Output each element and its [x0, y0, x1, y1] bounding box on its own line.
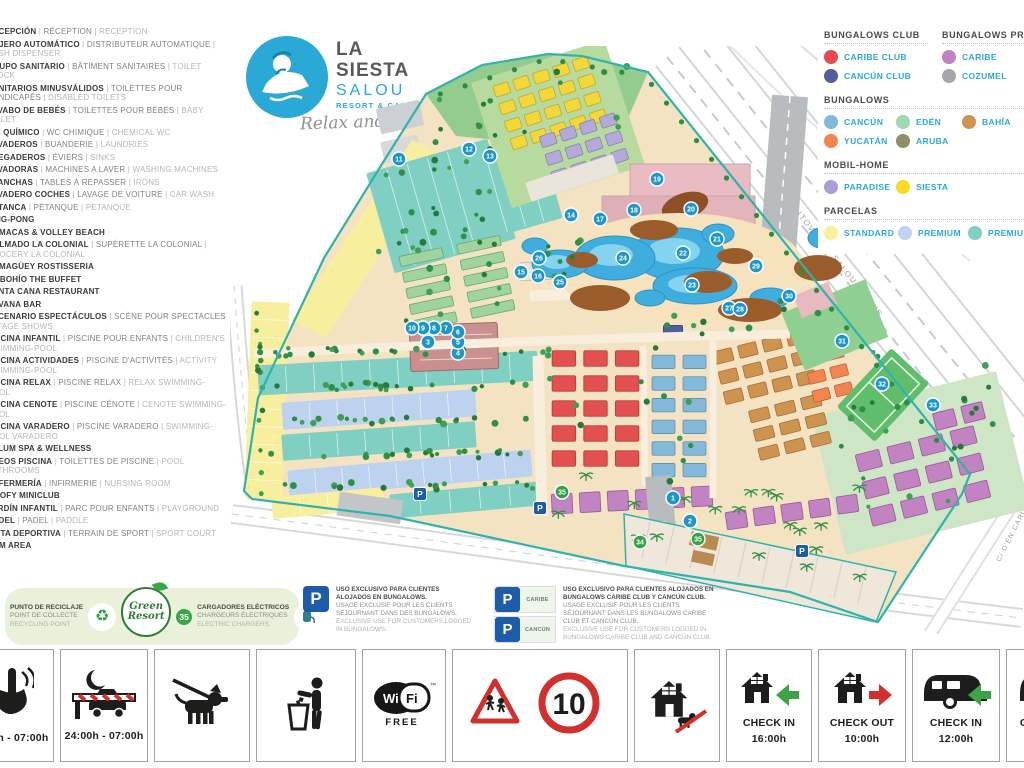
svg-text:P: P [537, 503, 543, 513]
map-marker-32: 32 [875, 377, 889, 391]
facility-item: LAVADEROS | BUANDERIE | LAUNDRIES [0, 140, 228, 150]
svg-text:18: 18 [630, 208, 638, 215]
legend-entry: ARUBA [896, 134, 962, 148]
legend-section-title: MOBIL-HOME [824, 160, 1024, 174]
svg-text:5: 5 [456, 340, 460, 347]
facility-item: CAJERO AUTOMÁTICO | DISTRIBUTEUR AUTOMAT… [0, 40, 228, 59]
legend-section-title: BUNGALOWS [824, 95, 1024, 109]
silence-icon [0, 666, 34, 729]
parking-club: PCARIBE PCANCÚN USO EXCLUSIVO PARA CLIEN… [494, 586, 723, 646]
color-dot-icon [896, 134, 910, 148]
house-check-in-icon [737, 665, 801, 714]
legend-entry: CANCÚN CLUB [824, 69, 928, 83]
color-dot-icon [824, 115, 838, 129]
rule-tile-silence: 24:00h - 07:00h [0, 649, 54, 762]
legend-entry: CARIBE [942, 50, 1024, 64]
facility-item: ESCENARIO ESPECTÁCULOS | SCÈNE POUR SPEC… [0, 312, 228, 331]
color-dot-icon [824, 180, 838, 194]
legend-entry: CARIBE CLUB [824, 50, 928, 64]
color-dot-icon [824, 69, 838, 83]
litter-icon [278, 674, 334, 737]
rule-tile-children-speed: 10 [452, 649, 628, 762]
svg-text:24: 24 [619, 256, 627, 263]
map-marker-3: 3 [421, 335, 435, 349]
svg-text:30: 30 [785, 294, 793, 301]
svg-text:34: 34 [636, 540, 644, 547]
map-marker-23: 23 [685, 278, 699, 292]
parking-general: P USO EXCLUSIVO PARA CLIENTES ALOJADOS E… [303, 586, 476, 646]
electric-chargers-text: CARGADORES ELÉCTRICOS CHARGEURS ÉLECTRIQ… [197, 604, 289, 630]
map-marker-24: 24 [616, 251, 630, 265]
svg-text:35: 35 [694, 537, 702, 544]
facility-item: PISCINA RELAX | PISCINE RELAX | RELAX SW… [0, 378, 228, 397]
map-marker-35: 35 [691, 532, 705, 546]
map-marker-28: 28 [733, 302, 747, 316]
svg-text:4: 4 [456, 351, 460, 358]
facility-item: PING-PONG [0, 215, 228, 225]
facility-item: LAVADORAS | MACHINES A LAVER | WASHING M… [0, 165, 228, 175]
svg-text:7: 7 [444, 326, 448, 333]
facility-item: GRUPO SANITARIO | BÂTIMENT SANITAIRES | … [0, 62, 228, 81]
rule-tile-barrier: 24:00h - 07:00h [60, 649, 148, 762]
svg-text:31: 31 [838, 339, 846, 346]
svg-text:26: 26 [535, 256, 543, 263]
rule-tile-wifi: WiFi™FREE [362, 649, 446, 762]
parking-sign-cancun: PCANCÚN [494, 616, 556, 643]
legend-entry: YUCATÁN [824, 134, 896, 148]
legend-entry: CANCÚN [824, 115, 896, 129]
facility-item: HAVANA BAR [0, 300, 228, 310]
facility-item: PETANCA | PÉTANQUE | PETANQUE [0, 203, 228, 213]
svg-text:9: 9 [421, 326, 425, 333]
house-check-out-icon [830, 665, 894, 714]
house-no-dogs-icon [646, 673, 708, 738]
map-marker-11: 11 [392, 152, 406, 166]
facility-item: CAMAGÜEY ROSTISSERIA [0, 262, 228, 272]
facility-item: PUNTA CANA RESTAURANT [0, 287, 228, 297]
map-marker-33: 33 [926, 398, 940, 412]
parking-sign-icon: P [303, 586, 329, 612]
map-marker-10: 10 [405, 321, 419, 335]
map-marker-1: 1 [666, 491, 680, 505]
facility-item: GYM AREA [0, 541, 228, 551]
svg-text:23: 23 [688, 283, 696, 290]
map-marker-18: 18 [627, 203, 641, 217]
sidebar-legend: RECEPCIÓN | RÉCEPTION | RECEPTIONCAJERO … [0, 27, 228, 554]
svg-text:29: 29 [752, 264, 760, 271]
svg-text:FREE: FREE [385, 717, 418, 728]
svg-text:6: 6 [456, 330, 460, 337]
svg-text:33: 33 [929, 403, 937, 410]
parking-marker: P [534, 502, 547, 515]
facility-item: COLMADO LA COLONIAL | SUPÉRETTE LA COLON… [0, 240, 228, 259]
legend-entry: PREMIUM PLUS [968, 226, 1024, 240]
color-dot-icon [824, 134, 838, 148]
rule-tile-caravan-check-out: CHECK OUT12:00h [1006, 649, 1024, 762]
color-dot-icon [968, 226, 982, 240]
facility-item: TULUM SPA & WELLNESS [0, 444, 228, 454]
map-marker-16: 16 [531, 269, 545, 283]
map-marker-12: 12 [462, 142, 476, 156]
svg-text:™: ™ [430, 682, 436, 689]
svg-text:10: 10 [408, 326, 416, 333]
recycling-point-text: PUNTO DE RECICLAJE POINT DE COLLECTE REC… [10, 604, 83, 630]
legend-entry: STANDARD [824, 226, 898, 240]
map-marker-31: 31 [835, 334, 849, 348]
wifi-icon: WiFi™FREE [372, 677, 436, 734]
map-marker-14: 14 [564, 208, 578, 222]
parking-sign-caribe: PCARIBE [494, 586, 556, 613]
accommodation-legend: BUNGALOWS CLUBCARIBE CLUBCANCÚN CLUBBUNG… [818, 28, 1024, 254]
svg-text:1: 1 [671, 496, 675, 503]
rule-tile-house-check-in: CHECK IN16:00h [726, 649, 812, 762]
legend-section-title: BUNGALOWS PREMIUM [942, 30, 1024, 44]
legend-entry: SIESTA [896, 180, 962, 194]
green-services-banner: PUNTO DE RECICLAJE POINT DE COLLECTE REC… [5, 588, 299, 645]
svg-text:14: 14 [567, 213, 575, 220]
svg-text:P: P [417, 489, 423, 499]
svg-text:28: 28 [736, 307, 744, 314]
facility-item: GOOFY MINICLUB [0, 491, 228, 501]
legend-entry: EDÉN [896, 115, 962, 129]
svg-text:32: 32 [878, 382, 886, 389]
map-marker-29: 29 [749, 259, 763, 273]
facility-item: PISCINA CENOTE | PISCINE CÉNOTE | CENOTE… [0, 400, 228, 419]
rule-tile-house-no-dogs [634, 649, 720, 762]
facility-item: PISCINA VARADERO | PISCINE VARADERO | SW… [0, 422, 228, 441]
color-dot-icon [942, 50, 956, 64]
map-marker-19: 19 [650, 172, 664, 186]
svg-text:2: 2 [688, 519, 692, 526]
svg-text:21: 21 [713, 237, 721, 244]
map-marker-34: 34 [633, 535, 647, 549]
map-marker-30: 30 [782, 289, 796, 303]
facility-item: PLANCHAS | TABLES À REPASSER | IRONS [0, 178, 228, 188]
legend-section-title: BUNGALOWS CLUB [824, 30, 928, 44]
rule-tile-litter [256, 649, 356, 762]
facility-item: PISCINA INFANTIL | PISCINE POUR ENFANTS … [0, 334, 228, 353]
dog-leash-icon [169, 676, 235, 735]
svg-text:3: 3 [426, 340, 430, 347]
caravan-check-in-icon [920, 665, 992, 714]
map-marker-25: 25 [553, 275, 567, 289]
facility-item: EL BOHÍO THE BUFFET [0, 275, 228, 285]
color-dot-icon [942, 69, 956, 83]
resort-map-page: RECEPCIÓN | RÉCEPTION | RECEPTIONCAJERO … [0, 0, 1024, 768]
svg-text:13: 13 [486, 154, 494, 161]
legend-section-title: PARCELAS [824, 206, 1024, 220]
svg-text:Wi: Wi [383, 691, 399, 706]
parking-marker: P [796, 545, 809, 558]
svg-text:12: 12 [465, 147, 473, 154]
map-marker-17: 17 [593, 212, 607, 226]
facility-item: LAVADERO COCHES | LAVAGE DE VOITURE | CA… [0, 190, 228, 200]
svg-text:8: 8 [432, 326, 436, 333]
facility-item: PISCINA ACTIVIDADES | PISCINE D'ACTIVITÉ… [0, 356, 228, 375]
charger-count-badge: 35 [176, 609, 192, 625]
facility-item: RECEPCIÓN | RÉCEPTION | RECEPTION [0, 27, 228, 37]
map-marker-20: 20 [684, 202, 698, 216]
legend-entry: PARADISE [824, 180, 896, 194]
caravan-check-out-icon [1016, 665, 1024, 714]
color-dot-icon [824, 226, 838, 240]
facility-item: ENFERMERÍA | INFIRMERIE | NURSING ROOM [0, 479, 228, 489]
facility-item: JARDÍN INFANTIL | PARC POUR ENFANTS | PL… [0, 504, 228, 514]
facility-item: ASEOS PISCINA | TOILETTES DE PISCINE | P… [0, 457, 228, 476]
green-resort-logo: Green Resort [121, 587, 171, 637]
svg-text:17: 17 [596, 217, 604, 224]
facility-item: PISTA DEPORTIVA | TERRAIN DE SPORT | SPO… [0, 529, 228, 539]
svg-text:35: 35 [558, 490, 566, 497]
recycle-icon: ♻ [88, 603, 116, 631]
legend-entry: PREMIUM [898, 226, 968, 240]
svg-text:11: 11 [395, 157, 403, 164]
svg-text:Fi: Fi [406, 691, 418, 706]
rule-tile-dog-leash [154, 649, 250, 762]
svg-text:10: 10 [552, 688, 585, 721]
leaf-icon [152, 579, 168, 592]
svg-text:22: 22 [679, 251, 687, 258]
map-marker-2: 2 [683, 514, 697, 528]
parking-marker: P [414, 488, 427, 501]
color-dot-icon [962, 115, 976, 129]
map-marker-15: 15 [514, 265, 528, 279]
legend-entry: COZUMEL [942, 69, 1024, 83]
map-marker-26: 26 [532, 251, 546, 265]
legend-entry: BAHÍA [962, 115, 1024, 129]
facility-item: WC QUÍMICO | WC CHIMIQUE | CHEMICAL WC [0, 128, 228, 138]
rule-tile-house-check-out: CHECK OUT10:00h [818, 649, 906, 762]
rule-tile-caravan-check-in: CHECK IN12:00h [912, 649, 1000, 762]
svg-text:27: 27 [725, 306, 733, 313]
svg-text:15: 15 [517, 270, 525, 277]
map-marker-35: 35 [555, 485, 569, 499]
svg-text:19: 19 [653, 177, 661, 184]
color-dot-icon [896, 115, 910, 129]
color-dot-icon [824, 50, 838, 64]
svg-text:P: P [799, 546, 805, 556]
svg-text:16: 16 [534, 274, 542, 281]
facility-item: SANITARIOS MINUSVÁLIDOS | TOILETTES POUR… [0, 84, 228, 103]
svg-text:20: 20 [687, 207, 695, 214]
map-marker-13: 13 [483, 149, 497, 163]
facility-item: LAVABO DE BEBÉS | TOILETTES POUR BÉBÉS |… [0, 106, 228, 125]
map-marker-22: 22 [676, 246, 690, 260]
svg-text:25: 25 [556, 280, 564, 287]
barrier-icon [71, 668, 137, 727]
children-speed-icon: 10 [465, 671, 615, 740]
map-marker-21: 21 [710, 232, 724, 246]
facility-item: PÁDEL | PADEL | PADDLE [0, 516, 228, 526]
rules-tile-row: 24:00h - 07:00h24:00h - 07:00hWiFi™FREE1… [0, 649, 1024, 762]
color-dot-icon [896, 180, 910, 194]
facility-item: HAMACAS & VOLLEY BEACH [0, 228, 228, 238]
color-dot-icon [898, 226, 912, 240]
facility-item: FREGADEROS | ÉVIERS | SINKS [0, 153, 228, 163]
parking-legend: P USO EXCLUSIVO PARA CLIENTES ALOJADOS E… [303, 586, 723, 646]
